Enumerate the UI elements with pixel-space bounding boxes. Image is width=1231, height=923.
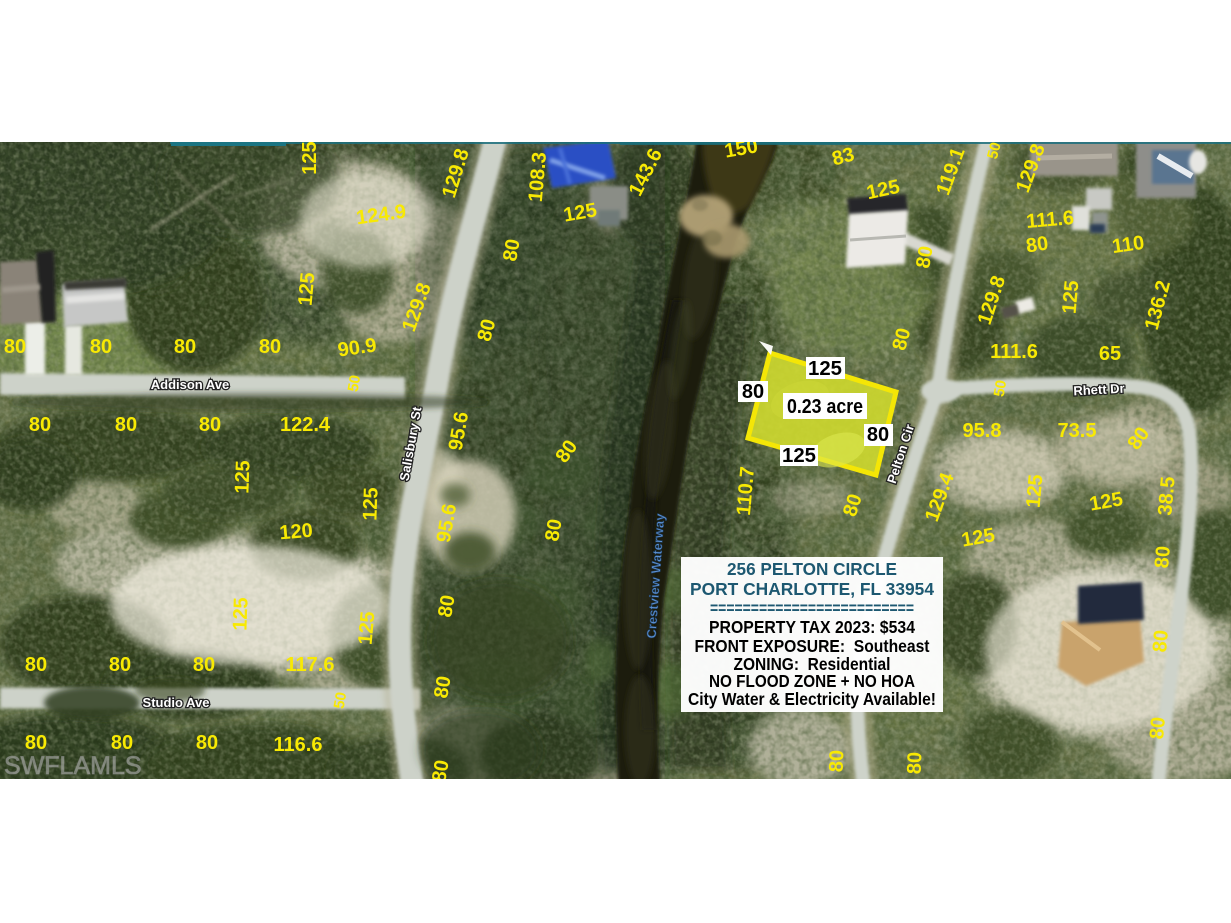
svg-text:FRONT EXPOSURE: Southeast: FRONT EXPOSURE: Southeast	[695, 636, 930, 656]
svg-text:80: 80	[428, 758, 454, 784]
svg-text:108.3: 108.3	[525, 151, 551, 203]
svg-text:125: 125	[1059, 280, 1084, 315]
svg-text:125: 125	[299, 141, 321, 174]
svg-text:80: 80	[111, 732, 133, 754]
svg-text:80: 80	[1146, 716, 1170, 740]
svg-text:NO FLOOD ZONE + NO HOA: NO FLOOD ZONE + NO HOA	[709, 671, 915, 691]
svg-text:80: 80	[742, 381, 764, 403]
svg-text:125: 125	[355, 611, 380, 646]
svg-text:80: 80	[1149, 629, 1173, 653]
svg-text:125: 125	[295, 272, 320, 307]
svg-text:80: 80	[115, 414, 137, 436]
svg-text:Rhett Dr: Rhett Dr	[1073, 381, 1125, 399]
svg-text:80: 80	[29, 414, 51, 436]
svg-text:122.4: 122.4	[280, 414, 331, 436]
svg-text:125: 125	[231, 460, 254, 494]
svg-text:80: 80	[25, 654, 47, 676]
svg-text:80: 80	[25, 732, 47, 754]
svg-text:125: 125	[359, 487, 382, 521]
svg-text:80: 80	[912, 244, 938, 270]
svg-text:80: 80	[193, 654, 215, 676]
svg-text:80: 80	[4, 336, 26, 358]
svg-text:80: 80	[1151, 545, 1175, 569]
svg-text:80: 80	[174, 336, 196, 358]
svg-text:110.7: 110.7	[733, 466, 759, 517]
svg-text:120: 120	[279, 520, 314, 545]
svg-text:73.5: 73.5	[1058, 420, 1097, 442]
svg-text:80: 80	[904, 752, 927, 775]
svg-text:80: 80	[434, 593, 460, 619]
svg-text:125: 125	[782, 445, 816, 467]
svg-text:125: 125	[229, 597, 252, 631]
svg-text:80: 80	[541, 517, 567, 543]
svg-text:125: 125	[1023, 474, 1048, 509]
svg-text:111.6: 111.6	[990, 341, 1038, 363]
svg-text:80: 80	[826, 750, 849, 773]
svg-text:125: 125	[808, 358, 842, 380]
svg-text:256 PELTON CIRCLE: 256 PELTON CIRCLE	[727, 559, 897, 579]
svg-text:Studio Ave: Studio Ave	[143, 695, 210, 710]
svg-text:80: 80	[499, 237, 525, 263]
svg-text:50: 50	[345, 374, 365, 393]
svg-text:117.6: 117.6	[286, 654, 335, 676]
svg-text:80: 80	[430, 674, 456, 700]
svg-text:50: 50	[991, 379, 1011, 398]
svg-text:Addison Ave: Addison Ave	[151, 377, 230, 392]
svg-text:65: 65	[1099, 343, 1121, 365]
svg-text:111.6: 111.6	[1025, 207, 1075, 233]
svg-text:95.8: 95.8	[963, 420, 1002, 442]
svg-text:80: 80	[259, 336, 281, 358]
svg-text:80: 80	[1025, 233, 1050, 258]
svg-text:80: 80	[90, 336, 112, 358]
svg-text:116.6: 116.6	[274, 734, 323, 756]
svg-text:80: 80	[867, 424, 889, 446]
svg-text:80: 80	[199, 414, 221, 436]
svg-text:City Water & Electricity Avail: City Water & Electricity Available!	[688, 689, 936, 709]
svg-text:80: 80	[196, 732, 218, 754]
svg-text:80: 80	[109, 654, 131, 676]
svg-text:=========================: =========================	[710, 598, 914, 618]
svg-text:PORT CHARLOTTE, FL 33954: PORT CHARLOTTE, FL 33954	[690, 579, 934, 599]
svg-text:PROPERTY TAX 2023: $534: PROPERTY TAX 2023: $534	[709, 617, 915, 637]
svg-text:50: 50	[331, 691, 351, 710]
svg-text:110: 110	[1111, 232, 1146, 258]
svg-text:38.5: 38.5	[1154, 476, 1179, 517]
svg-text:SWFLAMLS: SWFLAMLS	[4, 752, 142, 780]
svg-text:0.23 acre: 0.23 acre	[787, 396, 863, 418]
